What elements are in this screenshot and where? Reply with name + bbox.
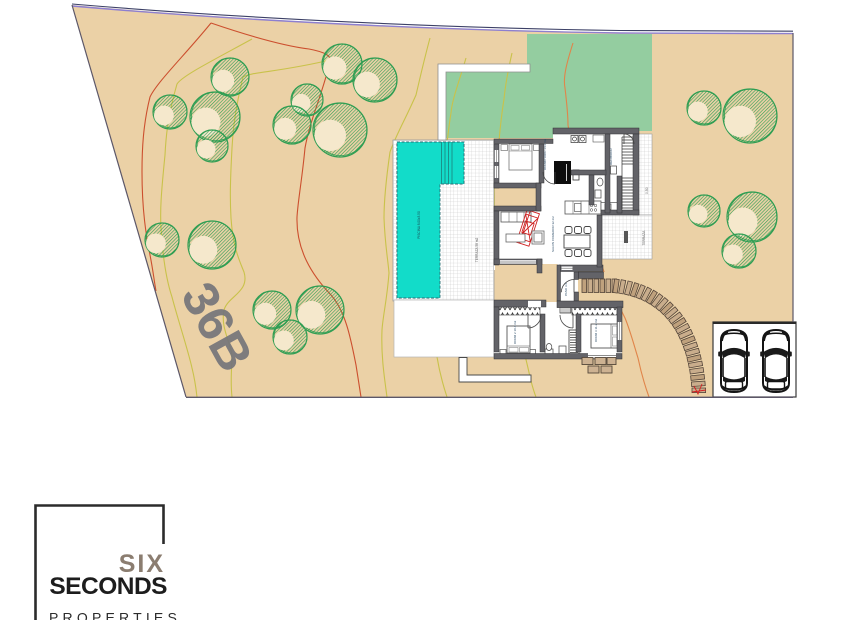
svg-text:SECONDS: SECONDS: [49, 573, 167, 600]
svg-text:PASO 3.6: PASO 3.6: [564, 283, 568, 296]
svg-text:DORMITORIO 14.2 m2: DORMITORIO 14.2 m2: [543, 139, 547, 170]
svg-text:RECIBIDOR: RECIBIDOR: [609, 147, 613, 165]
svg-text:DORM 2 10.4 m2: DORM 2 10.4 m2: [513, 320, 517, 344]
svg-text:PISCINA 8.00x3.50: PISCINA 8.00x3.50: [417, 211, 421, 239]
svg-text:TERRAZA 58 m2: TERRAZA 58 m2: [475, 238, 479, 263]
svg-text:TERRAZA: TERRAZA: [642, 230, 646, 246]
svg-text:SALON COMEDOR 32 m2: SALON COMEDOR 32 m2: [551, 216, 555, 252]
svg-text:0.50: 0.50: [645, 187, 649, 194]
svg-text:DORM 3 11.2 m2: DORM 3 11.2 m2: [594, 319, 598, 342]
svg-text:PROPERTIES: PROPERTIES: [49, 610, 181, 620]
